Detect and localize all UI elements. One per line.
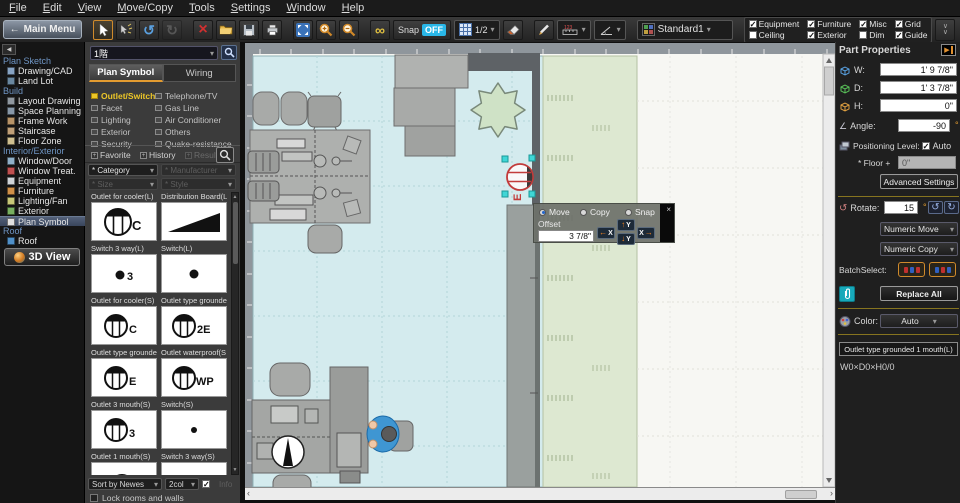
favorite-link[interactable]: +Favorite <box>91 150 131 160</box>
height-input[interactable]: 0" <box>880 99 957 112</box>
sidebar-collapse-button[interactable]: ◀ <box>2 44 16 55</box>
plant[interactable] <box>471 83 525 137</box>
history-link[interactable]: +History <box>140 150 175 160</box>
main-toolbar: ← Main Menu ↺ ↻ × <box>0 17 960 42</box>
side-room-floor[interactable] <box>543 56 637 487</box>
w-label: W: <box>854 65 865 75</box>
snap-state-badge: OFF <box>422 24 446 36</box>
scroll-down-icon[interactable]: ▼ <box>232 467 238 473</box>
chevron-down-icon: ▾ <box>707 25 711 34</box>
canvas-horizontal-scrollbar[interactable]: ‹ › <box>245 487 835 500</box>
columns-checkbox[interactable]: ✓ <box>202 480 210 488</box>
style-preset-dropdown[interactable]: Standard1 ▾ <box>637 20 733 40</box>
outlet-symbol-icon: WP <box>162 360 226 396</box>
application-window: File Edit View Move/Copy Tools Settings … <box>0 0 960 503</box>
selection-handle[interactable] <box>529 191 535 197</box>
category-outlet-switch[interactable]: Outlet/Switch <box>91 90 155 101</box>
open-file-button[interactable] <box>216 20 236 40</box>
sidebar-item-window-treat[interactable]: Window Treat. <box>0 166 85 176</box>
menu-settings[interactable]: Settings <box>231 2 271 14</box>
auto-checkbox[interactable]: ✓Auto <box>922 141 952 151</box>
sidebar-item-furniture[interactable]: Furniture <box>0 186 85 196</box>
sidebar-item-roof[interactable]: Roof <box>0 236 85 246</box>
more-layers-button[interactable]: ∨∨ <box>935 19 955 41</box>
snap-toggle[interactable]: Snap OFF <box>393 20 451 40</box>
preset-icon <box>642 23 655 36</box>
sidebar-item-space-planning[interactable]: Space Planning <box>0 106 85 116</box>
top-ruler <box>245 43 835 54</box>
lock-checkbox[interactable] <box>90 494 98 502</box>
outlet-symbol-icon: C <box>92 308 156 344</box>
columns-dropdown[interactable]: 2col▾ <box>165 478 199 490</box>
outlet-symbol-icon <box>92 464 156 476</box>
symbol-outlet-waterproof[interactable]: Outlet waterproof(S WP <box>161 348 227 398</box>
check-grid[interactable]: ✓Grid <box>895 19 928 30</box>
height-icon <box>839 101 851 112</box>
angle-label: Angle: <box>850 121 876 131</box>
chevron-down-icon: ▾ <box>491 25 495 34</box>
redo-button[interactable]: ↻ <box>162 20 182 40</box>
symbol-outlet-3mouth[interactable]: Outlet 3 mouth(S) 3 <box>91 400 157 450</box>
sidebar-item-equipment[interactable]: Equipment <box>0 176 85 186</box>
sidebar-item-drawing-cad[interactable]: Drawing/CAD <box>0 66 85 76</box>
frame-work-icon <box>7 117 15 125</box>
rotate-label: Rotate: <box>850 203 879 213</box>
symbol-outlet-1mouth[interactable]: Outlet 1 mouth(S) <box>91 452 157 475</box>
symbol-switch-3way-l[interactable]: Switch 3 way(L) 3 <box>91 244 157 294</box>
collapse-left-icon: ◀ <box>7 46 12 53</box>
delete-icon: × <box>198 22 207 38</box>
sidebar-item-floor-zone[interactable]: Floor Zone <box>0 136 85 146</box>
batch-icon <box>935 267 939 273</box>
collapse-right-icon: ▶ <box>944 46 949 54</box>
plan-symbol-icon <box>7 218 15 226</box>
floor-selector-dropdown[interactable]: 1階▾ <box>90 46 218 60</box>
link-move-button[interactable]: ∞ <box>370 20 390 40</box>
section-interior-exterior: Interior/Exterior <box>0 146 85 156</box>
color-palette-icon <box>839 316 851 327</box>
navigation-sidebar: ◀ Plan Sketch Drawing/CAD Land Lot Build… <box>0 42 85 503</box>
scroll-up-icon[interactable]: ▲ <box>232 194 238 200</box>
check-exterior[interactable]: ✓Exterior <box>807 30 851 41</box>
chevron-down-icon: ▾ <box>210 49 214 58</box>
symbol-outlet-grounded[interactable]: Outlet type grounde E <box>91 348 157 398</box>
eraser-button[interactable] <box>503 20 523 40</box>
selected-part-name: Outlet type grounded 1 mouth(L) <box>839 342 958 356</box>
grid-scale-dropdown[interactable]: 1/2 ▾ <box>454 20 500 40</box>
positioning-icon <box>839 141 850 151</box>
print-button[interactable] <box>262 20 282 40</box>
globe-3d-icon <box>14 252 25 263</box>
scrollbar-thumb[interactable] <box>233 202 238 264</box>
offset-input[interactable]: 3 7/8" <box>538 230 594 242</box>
svg-text:3: 3 <box>127 271 133 283</box>
folder-icon <box>91 117 98 123</box>
undo-button[interactable]: ↺ <box>139 20 159 40</box>
symbol-links-row: +Favorite +History +Result <box>85 145 240 163</box>
section-plan-sketch: Plan Sketch <box>0 56 85 66</box>
sidebar-item-exterior[interactable]: Exterior <box>0 206 85 216</box>
fit-view-icon <box>296 23 310 37</box>
lock-rooms-row[interactable]: Lock rooms and walls <box>90 493 184 503</box>
main-menu-button[interactable]: ← Main Menu <box>3 20 82 39</box>
numeric-copy-dropdown[interactable]: Numeric Copy▾ <box>880 242 958 256</box>
category-others[interactable]: Others <box>155 126 191 137</box>
radio-move[interactable]: Move <box>539 207 570 217</box>
folder-icon <box>155 129 162 135</box>
multi-select-tool-button[interactable] <box>116 20 136 40</box>
width-input[interactable]: 1' 9 7/8" <box>880 63 957 76</box>
back-arrow-icon: ← <box>10 24 20 35</box>
panel-collapse-button[interactable]: ▶ <box>941 44 956 56</box>
view-3d-button[interactable]: 3D View <box>4 248 80 266</box>
floor-zone-icon <box>7 137 15 145</box>
radio-snap[interactable]: Snap <box>625 207 655 217</box>
svg-text:E: E <box>512 194 524 201</box>
ramp-symbol-icon <box>162 204 226 240</box>
sidebar-item-land-lot[interactable]: Land Lot <box>0 76 85 86</box>
menu-file[interactable]: File <box>9 2 27 14</box>
check-ceiling[interactable]: Ceiling <box>749 30 800 41</box>
symbol-distribution-board-l[interactable]: Distribution Board(L <box>161 192 227 242</box>
rotate-cw-button[interactable]: ↻ <box>944 201 959 214</box>
d-label: D: <box>854 83 863 93</box>
redo-icon: ↻ <box>166 23 178 37</box>
degree-mark: ° <box>923 202 927 212</box>
floor-offset-label: * Floor + <box>858 158 890 168</box>
section-roof: Roof <box>0 226 85 236</box>
measure-icon: 123 <box>562 24 579 36</box>
svg-text:E: E <box>129 376 136 388</box>
sidebar-item-window-door[interactable]: Window/Door <box>0 156 85 166</box>
sidebar-item-frame-work[interactable]: Frame Work <box>0 116 85 126</box>
chevron-double-icon: ∨∨ <box>938 24 952 36</box>
depth-input[interactable]: 1' 3 7/8" <box>880 81 957 94</box>
zoom-in-icon <box>319 23 333 37</box>
floor-search-button[interactable] <box>221 45 237 60</box>
offset-label: Offset <box>538 219 561 229</box>
folder-icon <box>155 93 162 99</box>
folder-icon <box>91 105 98 111</box>
part-properties-panel: Part Properties ▶ W: 1' 9 7/8" D: 1' 3 7… <box>835 42 960 503</box>
svg-text:3: 3 <box>129 428 135 440</box>
pen-icon <box>537 23 550 36</box>
selection-handle[interactable] <box>529 155 535 161</box>
folder-icon <box>155 117 162 123</box>
switch-symbol-icon <box>162 256 226 292</box>
save-icon <box>243 24 255 36</box>
sort-dropdown[interactable]: Sort by Newes▾ <box>88 478 162 490</box>
category-lighting[interactable]: Lighting <box>91 114 131 125</box>
positioning-label: Positioning Level: <box>853 141 920 151</box>
move-left-x-button[interactable]: ←X <box>597 227 615 239</box>
svg-text:2E: 2E <box>197 324 210 336</box>
section-build: Build <box>0 86 85 96</box>
batch-select-all-button[interactable] <box>929 262 956 277</box>
category-gas-line[interactable]: Gas Line <box>155 102 199 113</box>
svg-text:WP: WP <box>196 376 214 388</box>
angle-icon: ∠ <box>839 121 847 132</box>
zoom-out-button[interactable] <box>339 20 359 40</box>
layout-drawing-icon <box>7 97 15 105</box>
printer-icon <box>266 24 279 36</box>
outlet-symbol-icon: E <box>92 360 156 396</box>
canvas-container: E <box>240 42 835 503</box>
floor-offset-input: 0" <box>898 156 956 169</box>
batch-select-same-button[interactable] <box>898 262 925 277</box>
angle-tool-dropdown[interactable]: ▾ <box>594 20 626 40</box>
advanced-settings-button[interactable]: Advanced Settings <box>880 174 958 189</box>
selected-part-dimensions: W0×D0×H0/0 <box>840 362 895 372</box>
tab-plan-symbol[interactable]: Plan Symbol <box>89 64 163 82</box>
menu-move-copy[interactable]: Move/Copy <box>117 2 173 14</box>
exterior-icon <box>7 207 15 215</box>
wall-right[interactable] <box>532 71 540 208</box>
batch-icon <box>904 267 908 273</box>
symbol-outlet-grounded-2mouth[interactable]: Outlet type grounde 2E <box>161 296 227 346</box>
color-dropdown[interactable]: Auto▾ <box>880 314 958 328</box>
selection-handle[interactable] <box>502 191 508 197</box>
folder-icon <box>155 105 162 111</box>
undo-icon: ↺ <box>143 23 155 37</box>
menu-bar: File Edit View Move/Copy Tools Settings … <box>0 0 960 17</box>
move-down-y-button[interactable]: ↓Y <box>617 233 635 245</box>
search-icon <box>219 149 231 161</box>
rotate-input[interactable]: 15 <box>884 201 918 214</box>
switch-symbol-icon: 3 <box>92 256 156 292</box>
sidebar-item-staircase[interactable]: Staircase <box>0 126 85 136</box>
menu-help[interactable]: Help <box>342 2 365 14</box>
category-telephone-tv[interactable]: Telephone/TV <box>155 90 217 101</box>
land-lot-icon <box>7 77 15 85</box>
width-icon <box>839 65 851 76</box>
staircase-icon <box>7 127 15 135</box>
zoom-out-icon <box>342 23 356 37</box>
paperclip-icon <box>843 288 852 300</box>
degree-mark: ° <box>955 120 959 130</box>
tab-wiring[interactable]: Wiring <box>163 64 237 82</box>
radio-copy[interactable]: Copy <box>580 207 610 217</box>
batch-select-label: BatchSelect: <box>839 265 887 275</box>
selection-handle[interactable] <box>502 156 508 162</box>
scrollbar-thumb[interactable] <box>785 490 817 499</box>
scroll-left-icon[interactable]: ‹ <box>247 488 250 498</box>
h-label: H: <box>854 101 863 111</box>
fit-view-button[interactable] <box>293 20 313 40</box>
menu-window[interactable]: Window <box>286 2 325 14</box>
rotate-icon: ↺ <box>839 203 847 214</box>
result-link: +Result <box>185 150 218 160</box>
multi-cursor-icon <box>119 23 133 37</box>
rotate-ccw-button[interactable]: ↺ <box>928 201 943 214</box>
switch-symbol-icon <box>162 464 226 476</box>
color-label: Color: <box>854 316 878 326</box>
filter-style-dropdown: * Style▾ <box>161 178 236 190</box>
window-door-icon <box>7 157 15 165</box>
check-equipment[interactable]: ✓Equipment <box>749 19 800 30</box>
sidebar-item-layout-drawing[interactable]: Layout Drawing <box>0 96 85 106</box>
space-planning-icon <box>7 107 15 115</box>
filter-category-dropdown[interactable]: * Category▾ <box>88 164 158 176</box>
furniture-icon <box>7 187 15 195</box>
folder-icon <box>91 93 98 99</box>
outlet-symbol-icon: 2E <box>162 308 226 344</box>
wall-top[interactable] <box>468 53 540 71</box>
category-exterior[interactable]: Exterior <box>91 126 130 137</box>
scroll-right-icon[interactable]: › <box>830 488 833 498</box>
info-label: Info <box>219 480 232 489</box>
delete-button[interactable]: × <box>193 20 213 40</box>
layer-visibility-group: ✓Equipment Ceiling ✓Furniture ✓Exterior … <box>744 17 933 43</box>
chevron-down-icon: ▾ <box>617 25 621 34</box>
check-guide[interactable]: ✓Guide <box>895 30 928 41</box>
angle-input[interactable]: -90 <box>898 119 950 132</box>
equipment-icon <box>7 177 15 185</box>
measure-dropdown[interactable]: 123 ▾ <box>557 20 591 40</box>
roof-icon <box>7 237 15 245</box>
symbol-grid-scrollbar[interactable]: ▲ ▼ <box>231 192 239 475</box>
plan-symbol-panel: 1階▾ Plan Symbol Wiring Outlet/Switch Fac… <box>85 42 240 503</box>
check-misc[interactable]: ✓Misc <box>859 19 886 30</box>
move-copy-overlay-toolbar: Move Copy Snap Offset 3 7/8" ←X ↑Y ↓Y X→… <box>533 203 675 243</box>
move-up-y-button[interactable]: ↑Y <box>617 219 635 231</box>
svg-text:C: C <box>129 324 137 336</box>
svg-text:C: C <box>132 218 142 233</box>
floorplan-canvas[interactable]: E <box>245 43 835 487</box>
menu-view[interactable]: View <box>78 2 102 14</box>
sidebar-item-plan-symbol[interactable]: Plan Symbol <box>0 216 85 226</box>
symbol-outlet-cooler-l[interactable]: Outlet for cooler(L) C <box>91 192 157 242</box>
outlet-symbol-icon: C <box>92 204 156 240</box>
filter-manufacturer-dropdown: * Manufacturer▾ <box>161 164 236 176</box>
symbol-grid: Outlet for cooler(L) C Distribution Boar… <box>91 192 229 475</box>
canvas-vertical-scrollbar[interactable] <box>823 54 835 487</box>
menu-edit[interactable]: Edit <box>43 2 62 14</box>
depth-icon <box>839 83 851 94</box>
wall-column[interactable] <box>507 205 537 487</box>
filter-size-dropdown: * Size▾ <box>88 178 158 190</box>
chevron-down-icon: ▾ <box>582 25 586 34</box>
zoom-in-button[interactable] <box>316 20 336 40</box>
check-furniture[interactable]: ✓Furniture <box>807 19 851 30</box>
folder-icon <box>91 129 98 135</box>
angle-icon <box>599 24 614 36</box>
infinity-icon: ∞ <box>375 23 385 37</box>
attach-button[interactable] <box>839 286 855 302</box>
eraser-icon <box>506 24 520 36</box>
lighting-fan-icon <box>7 197 15 205</box>
symbol-outlet-cooler-s[interactable]: Outlet for cooler(S) C <box>91 296 157 346</box>
check-dim[interactable]: Dim <box>859 30 886 41</box>
symbol-switch-l[interactable]: Switch(L) <box>161 244 227 294</box>
save-button[interactable] <box>239 20 259 40</box>
menu-tools[interactable]: Tools <box>189 2 215 14</box>
outlet-symbol-icon: 3 <box>92 412 156 448</box>
symbol-switch-3way-s[interactable]: Switch 3 way(S) <box>161 452 227 475</box>
close-icon[interactable]: × <box>666 205 671 214</box>
drawing-cad-icon <box>7 67 15 75</box>
grid-icon <box>459 23 472 36</box>
numeric-move-dropdown[interactable]: Numeric Move▾ <box>880 222 958 236</box>
sidebar-item-lighting-fan[interactable]: Lighting/Fan <box>0 196 85 206</box>
switch-symbol-icon <box>162 412 226 448</box>
select-tool-button[interactable] <box>93 20 113 40</box>
search-icon <box>224 47 235 58</box>
replace-all-button[interactable]: Replace All <box>880 286 958 301</box>
window-treat-icon <box>7 167 15 175</box>
pen-tool-button[interactable] <box>534 20 554 40</box>
move-right-x-button[interactable]: X→ <box>637 227 655 239</box>
cursor-icon <box>97 23 109 37</box>
panel-title: Part Properties <box>839 45 911 56</box>
folder-icon <box>219 24 233 35</box>
symbol-search-button[interactable] <box>216 147 234 163</box>
category-air-conditioner[interactable]: Air Conditioner <box>155 114 221 125</box>
category-facet[interactable]: Facet <box>91 102 122 113</box>
symbol-switch-s[interactable]: Switch(S) <box>161 400 227 450</box>
